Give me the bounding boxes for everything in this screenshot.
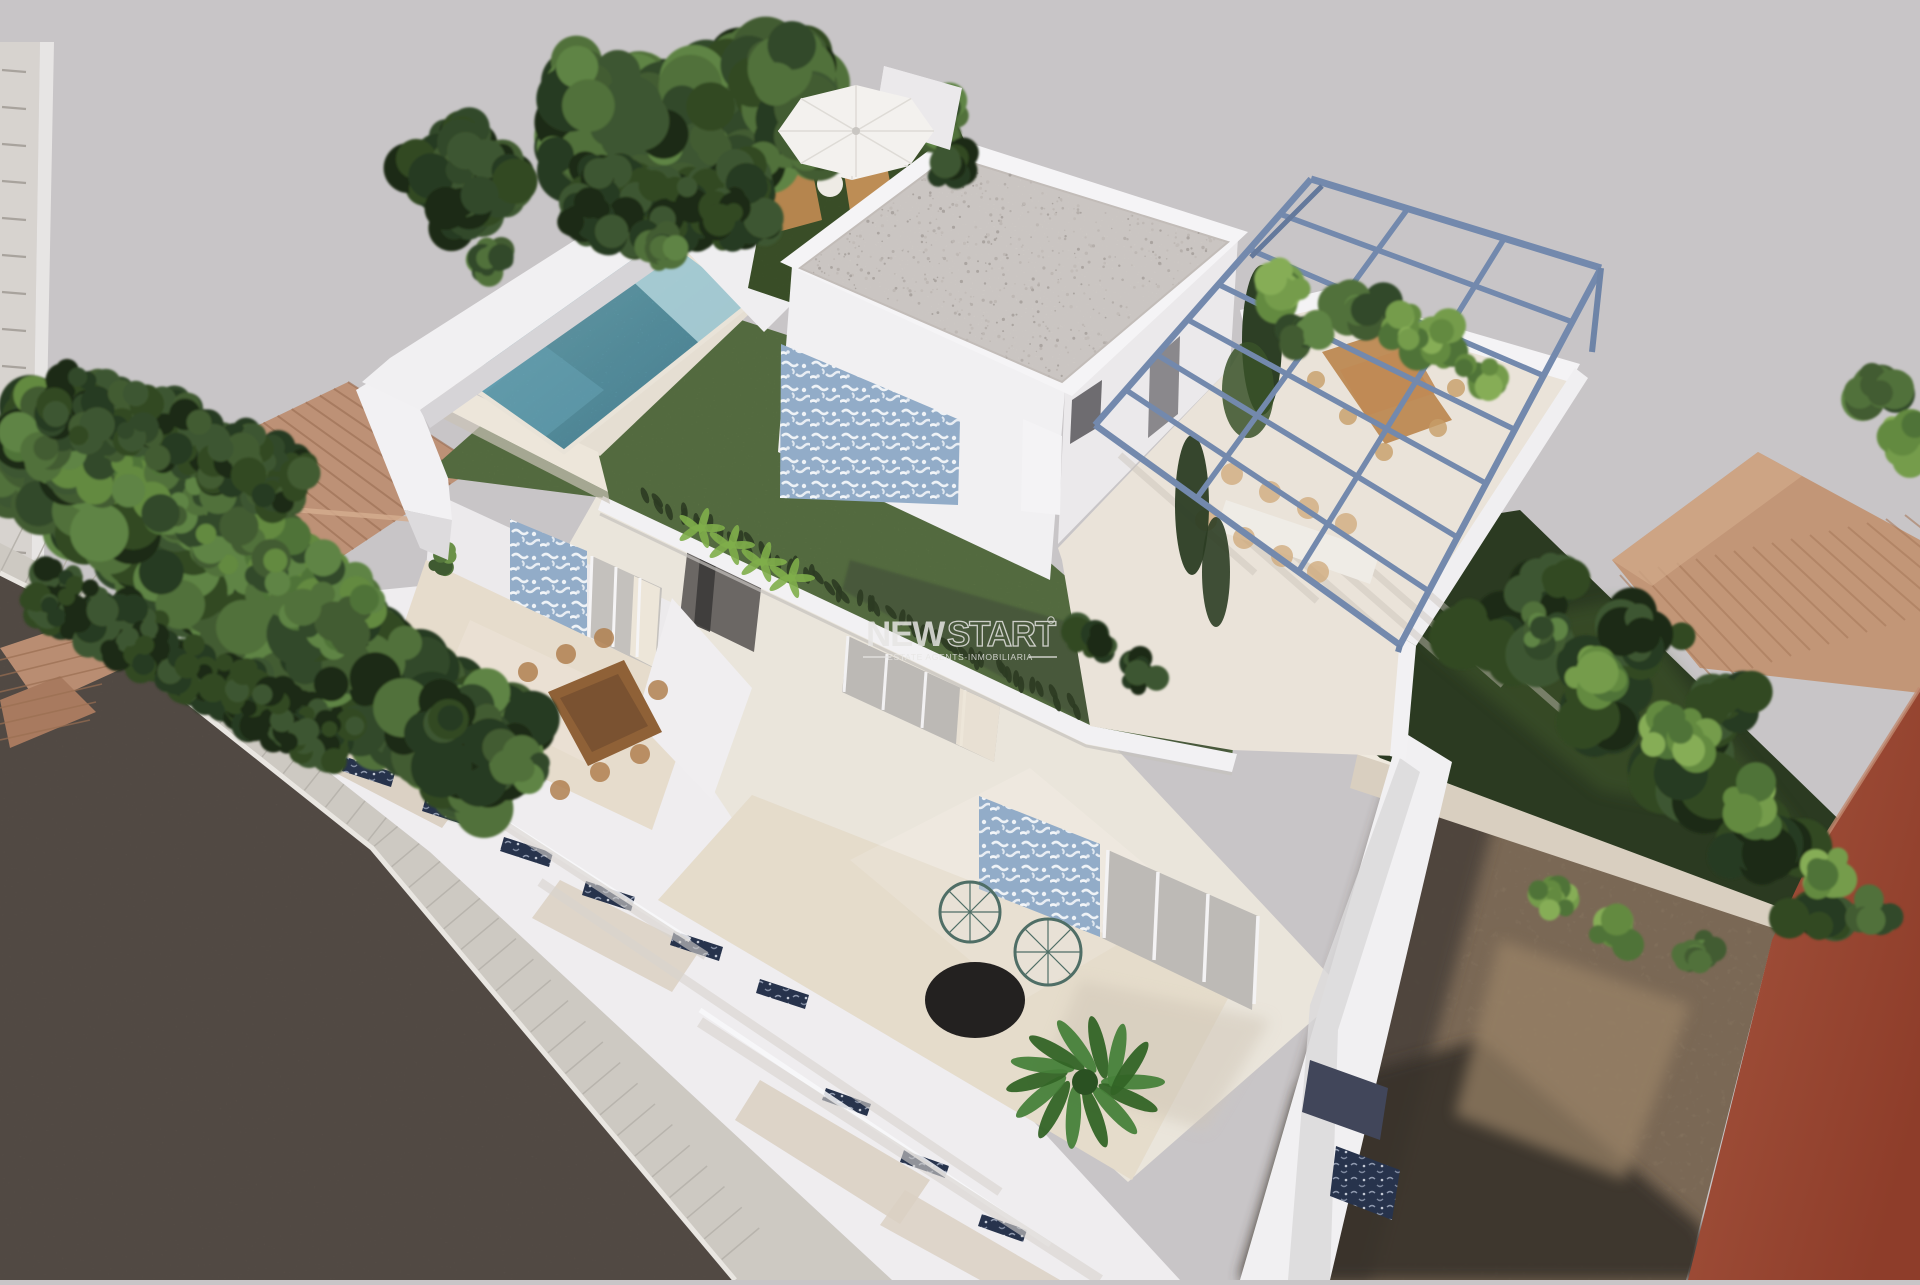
svg-text:NEW: NEW xyxy=(866,615,945,654)
svg-text:START: START xyxy=(947,615,1056,654)
svg-text:ESTATE AGENTS-INMOBILIARIA: ESTATE AGENTS-INMOBILIARIA xyxy=(887,652,1033,662)
